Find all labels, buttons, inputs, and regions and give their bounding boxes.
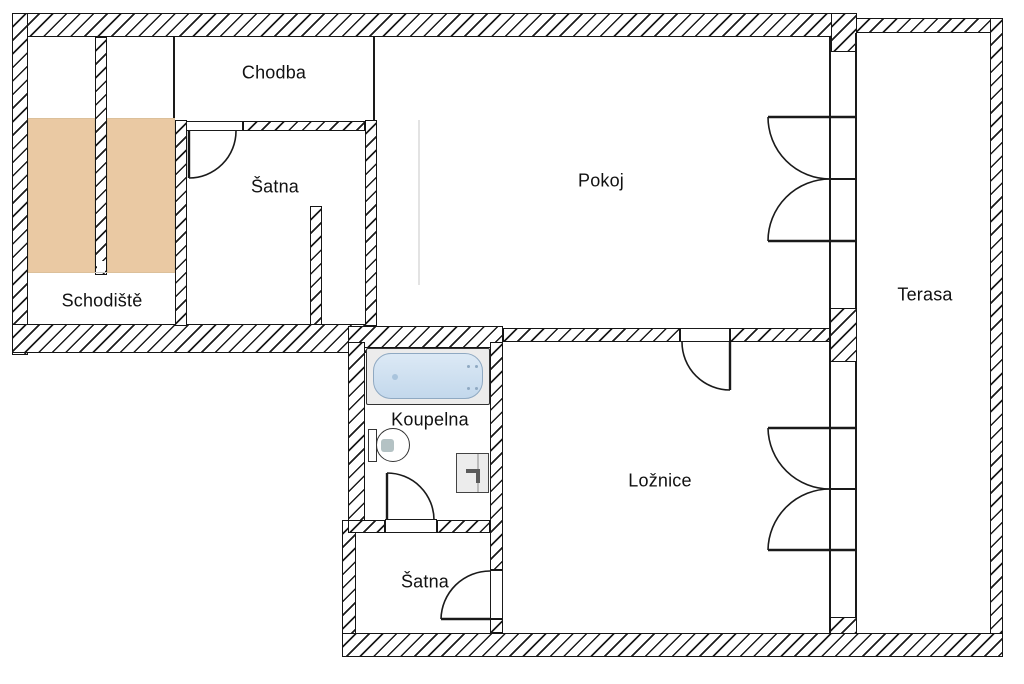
door-arc-loznice-lower <box>768 489 830 550</box>
room-label-chodba: Chodba <box>242 63 306 84</box>
bathtub-basin <box>373 353 483 399</box>
line-chodba-stairs <box>173 37 175 122</box>
sink <box>456 453 489 493</box>
room-label-koupelna: Koupelna <box>391 410 469 431</box>
door-arc-koupelna <box>387 473 434 520</box>
room-label-terasa: Terasa <box>897 285 952 306</box>
door-arc-loznice-upper <box>768 428 830 489</box>
room-label-pokoj: Pokoj <box>578 171 624 192</box>
wall-koupelna-right <box>490 342 503 570</box>
wall-east-bottom-block <box>830 617 857 634</box>
room-label-schodiste: Schodiště <box>62 291 143 312</box>
bathtub-faucet-icon <box>467 365 470 368</box>
door-frame-satna-lower <box>490 570 503 619</box>
bathtub <box>366 348 490 405</box>
wall-terasa-right <box>990 18 1003 657</box>
stair-flight-left <box>28 118 95 273</box>
wall-outer-left <box>12 13 28 355</box>
room-label-satna-lower: Šatna <box>401 572 449 593</box>
window-mullion-pokoj <box>829 178 857 180</box>
wall-east-mid-block <box>830 308 857 362</box>
wall-terasa-top <box>856 18 1003 33</box>
wall-upper-bottom <box>12 324 377 353</box>
door-arc-loznice-entry <box>682 342 730 390</box>
wall-satna-stub <box>310 206 322 325</box>
bathtub-drain-icon <box>392 374 398 380</box>
wall-satna-upper-left <box>175 120 187 326</box>
wall-top <box>12 13 832 37</box>
window-mullion-loznice <box>829 488 857 490</box>
bathtub-faucet-icon <box>475 365 478 368</box>
wall-koupelna-bottom-r <box>437 520 490 533</box>
room-label-satna-upper: Šatna <box>251 177 299 198</box>
door-frame-satna-upper <box>186 121 243 131</box>
door-frame-loznice <box>680 328 730 342</box>
line-chodba-pokoj <box>373 37 375 121</box>
wall-chodba-satna <box>243 121 365 131</box>
bathtub-faucet-icon <box>467 387 470 390</box>
door-arc-pokoj-upper <box>768 117 830 179</box>
wall-loznice-top-west <box>503 328 680 342</box>
wall-koupelna-top <box>348 326 503 348</box>
door-arc-satna-upper <box>189 131 236 178</box>
wall-koupelna-bottom-l <box>348 520 385 533</box>
wall-loznice-top-east <box>730 328 832 342</box>
door-arc-pokoj-lower <box>768 179 830 241</box>
toilet-seat <box>381 439 394 452</box>
wall-main-bottom <box>342 633 1003 657</box>
wall-east-top-block <box>831 13 857 52</box>
wall-stair-divider <box>95 37 107 275</box>
wall-koupelna-left <box>348 342 365 533</box>
floor-plan: Chodba Šatna Pokoj Schodiště Terasa Koup… <box>0 0 1024 684</box>
line-pokoj-marker <box>418 120 420 285</box>
stair-divider-notch <box>97 261 105 272</box>
bathtub-faucet-icon <box>475 387 478 390</box>
stair-flight-right <box>107 118 175 273</box>
door-frame-koupelna <box>385 519 437 533</box>
sink-faucet-icon <box>476 469 480 483</box>
wall-loznice-left-lower <box>490 619 503 633</box>
wall-pokoj-west <box>365 120 377 326</box>
room-label-loznice: Ložnice <box>628 471 691 492</box>
